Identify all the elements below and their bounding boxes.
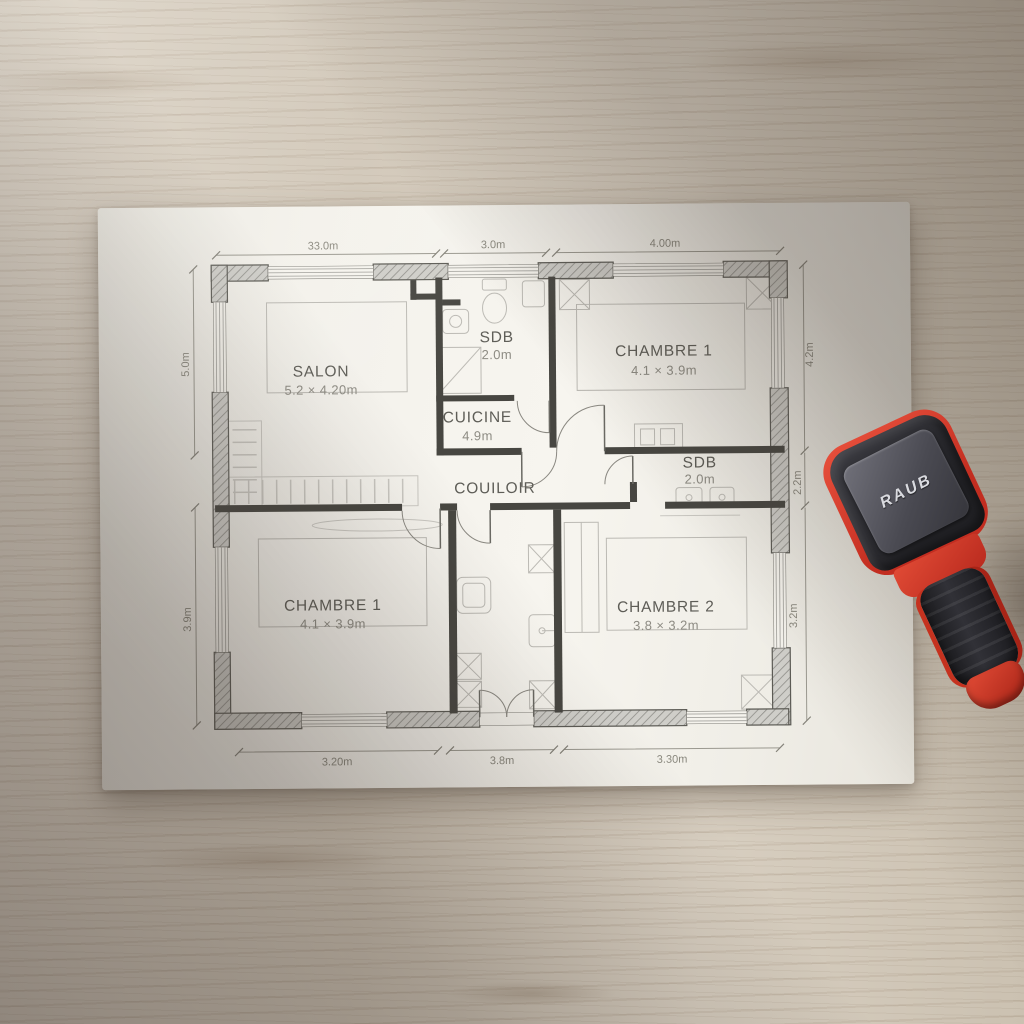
dim-top-3: 4.00m <box>650 238 681 250</box>
room-label-chambre1-top: CHAMBRE 1 <box>615 342 713 360</box>
dim-left-2: 3.9m <box>182 607 194 632</box>
room-size-cuisine: 4.9m <box>462 428 493 443</box>
dim-top-1: 33.0m <box>308 240 339 252</box>
room-size-sdb-right: 2.0m <box>685 471 716 486</box>
dim-top-2: 3.0m <box>481 239 506 251</box>
room-label-salon: SALON <box>293 363 350 380</box>
dim-right-2: 2.2m <box>792 470 804 495</box>
scene: { "plan": { "rooms": { "salon": { "label… <box>0 0 1024 1024</box>
room-label-couloir: COUILOIR <box>454 480 535 498</box>
room-size-chambre2: 3.8 × 3.2m <box>633 617 699 633</box>
device-brand-logo: RAUB <box>877 471 935 513</box>
dim-bottom-3: 3.30m <box>657 754 688 766</box>
room-label-cuisine: CUICINE <box>443 409 512 427</box>
door-arcs-group <box>401 400 634 718</box>
dim-right-3: 3.2m <box>788 603 800 628</box>
room-label-sdb-right: SDB <box>683 454 717 471</box>
device-screen: RAUB <box>840 426 973 558</box>
room-size-chambre1-bottom: 4.1 × 3.9m <box>300 616 366 632</box>
dim-left-1: 5.0m <box>180 352 192 377</box>
dim-right-1: 4.2m <box>804 342 816 367</box>
room-label-chambre1-bottom: CHAMBRE 1 <box>284 597 382 615</box>
floor-plan-paper: SALON 5.2 × 4.20m SDB 2.0m CUICINE 4.9m … <box>98 202 915 790</box>
room-size-sdb-top: 2.0m <box>482 347 513 362</box>
room-size-chambre1-top: 4.1 × 3.9m <box>631 362 697 378</box>
dim-bottom-2: 3.8m <box>490 755 515 767</box>
room-label-chambre2: CHAMBRE 2 <box>617 598 715 616</box>
room-size-salon: 5.2 × 4.20m <box>284 382 358 398</box>
floor-plan-svg: SALON 5.2 × 4.20m SDB 2.0m CUICINE 4.9m … <box>98 202 915 790</box>
room-label-sdb-top: SDB <box>480 329 514 346</box>
dim-bottom-1: 3.20m <box>322 756 353 768</box>
